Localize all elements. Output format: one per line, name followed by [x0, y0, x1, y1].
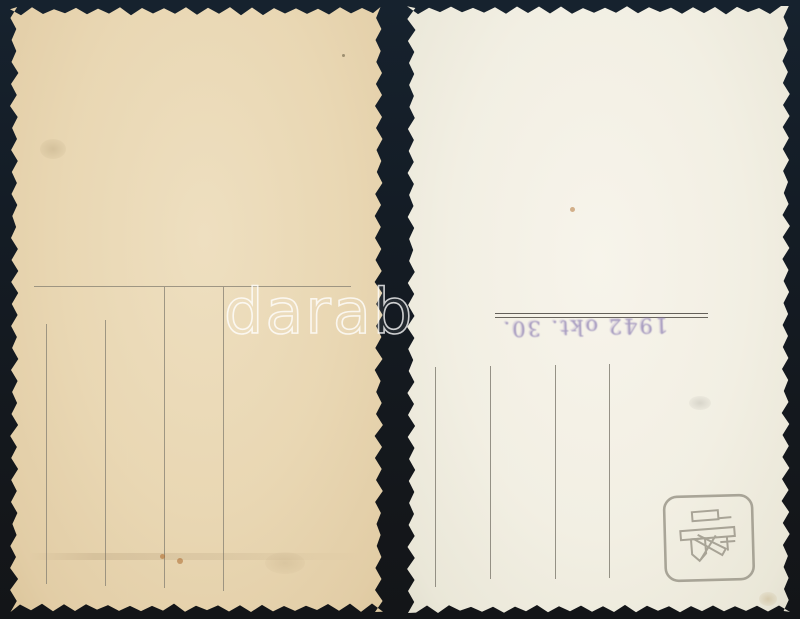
- stain: [28, 553, 360, 560]
- ruling-line: [435, 367, 436, 587]
- stain: [40, 139, 66, 159]
- ruling-line: [609, 364, 610, 578]
- stain: [342, 54, 345, 57]
- ruling-line: [555, 365, 556, 579]
- ruling-line: [46, 324, 47, 584]
- ruling-line: [105, 320, 106, 586]
- date-stamp: 1942 okt. 30.: [501, 309, 670, 345]
- ruling-line: [164, 287, 165, 588]
- ruling-line: [223, 287, 224, 591]
- address-divider-line: [34, 286, 351, 287]
- scanned-postcards-photo: 1942 okt. 30. darab: [0, 0, 800, 619]
- ruling-line: [490, 366, 491, 579]
- stain: [689, 396, 711, 410]
- photo-studio-logo-icon: [660, 491, 759, 591]
- stain: [759, 592, 777, 606]
- stain: [570, 207, 575, 212]
- postcard-left: [10, 7, 383, 612]
- postcard-right: 1942 okt. 30.: [407, 6, 790, 613]
